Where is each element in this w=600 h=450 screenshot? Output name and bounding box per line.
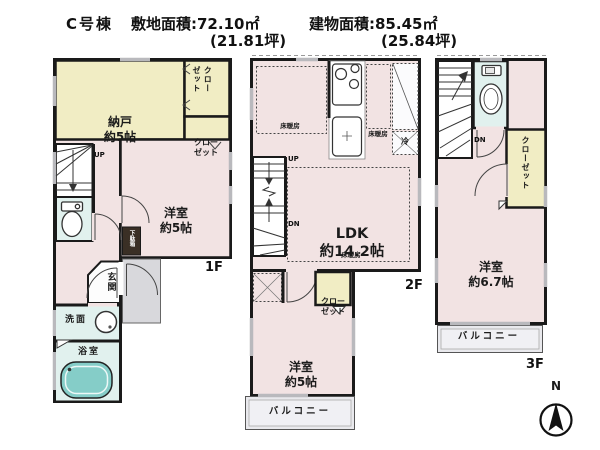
room-label-closet-2f: クローゼット (321, 277, 345, 337)
room-label-closet-upper-1f: クローゼット (191, 66, 213, 93)
basin-icon (96, 312, 117, 333)
compass-icon (541, 403, 572, 436)
room-label-bedroom-3f: 洋室約6.7帖 (468, 230, 513, 320)
toilet-icon-3f (480, 66, 502, 115)
room-label-closet-lower-1f: クローゼット (194, 118, 218, 178)
porch (123, 259, 161, 323)
floor-label-3f: 3F (526, 357, 544, 372)
room-label-nando: 納戸約5帖 (104, 85, 136, 175)
floor-heating-label-2: 床暖房 (368, 130, 388, 138)
stairs-up-label-2f: UP (288, 155, 299, 163)
balcony-label-3f: バルコニー (458, 331, 520, 343)
fridge-label: 冷 (401, 137, 409, 147)
stairs-down-label-2f: DN (288, 220, 300, 228)
room-label-closet-3f: クローゼット (521, 136, 529, 190)
bathtub-icon (61, 362, 112, 398)
room-label-bedroom-1f: 洋室約5帖 (160, 176, 192, 266)
floorplan-page: C号棟 敷地面積:72.10㎡ (21.81坪) 建物面積:85.45㎡ (25… (0, 0, 600, 450)
floor-label-1f: 1F (205, 260, 223, 275)
building-title: C号棟 (66, 13, 113, 34)
toilet-icon-1f (62, 202, 83, 237)
stairs-down-label-3f: DN (474, 136, 486, 144)
compass-north-label: N (551, 379, 561, 394)
shoe-cabinet-label: 下駄箱 (128, 230, 136, 247)
room-label-entrance: 玄関 (105, 272, 118, 292)
floor-label-2f: 2F (405, 278, 423, 293)
room-label-bathroom: 浴室 (78, 347, 100, 358)
stove-icon (333, 64, 362, 105)
floor-heating-label-1: 床暖房 (280, 122, 300, 130)
room-label-washroom: 洗面 (65, 315, 87, 326)
kitchen-sink-icon (333, 117, 362, 156)
building-area-tsubo: (25.84坪) (381, 30, 457, 51)
balcony-label-2f: バルコニー (269, 406, 331, 418)
stairs-up-label-1f: UP (94, 151, 105, 159)
land-area-tsubo: (21.81坪) (210, 30, 286, 51)
